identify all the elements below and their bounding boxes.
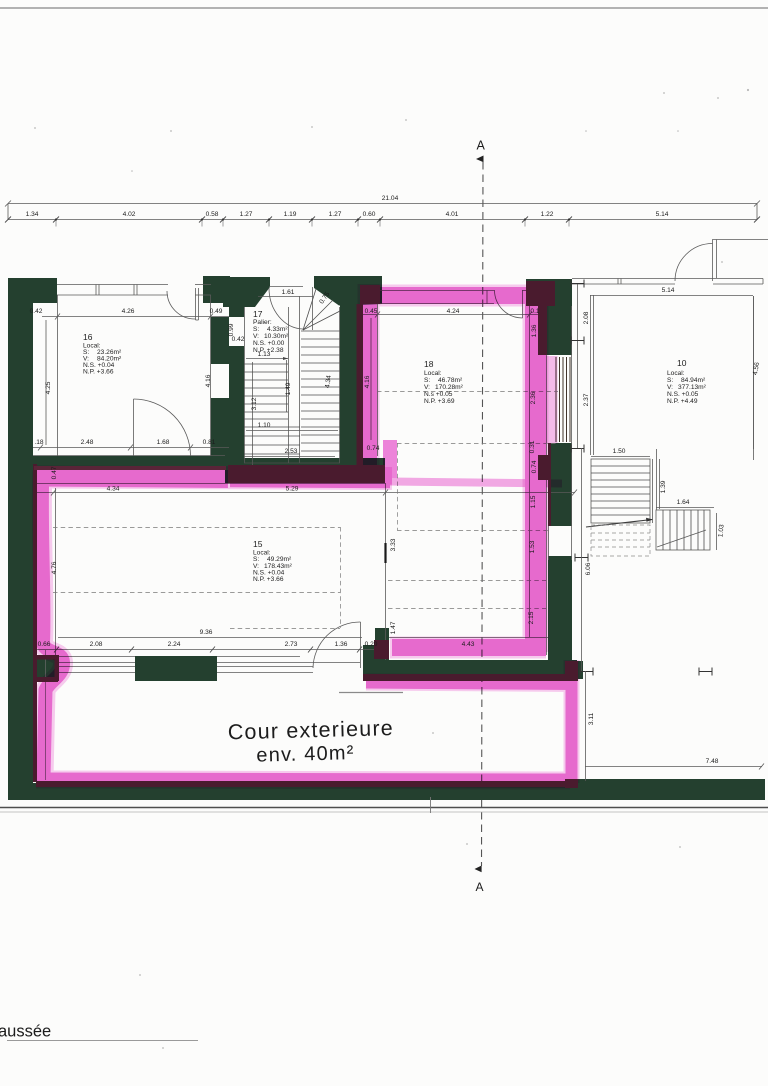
svg-text:0.47: 0.47	[51, 466, 58, 479]
svg-text:0.1: 0.1	[530, 308, 539, 315]
svg-text:3.12: 3.12	[251, 397, 258, 410]
svg-text:377.13m²: 377.13m²	[678, 384, 707, 391]
svg-text:2.36: 2.36	[530, 391, 537, 404]
svg-text:N.S. +0.05: N.S. +0.05	[667, 391, 699, 398]
svg-text:2.15: 2.15	[528, 611, 535, 624]
svg-text:3.33: 3.33	[390, 538, 397, 551]
svg-text:N.P. +3.66: N.P. +3.66	[253, 576, 284, 583]
svg-text:9.36: 9.36	[200, 629, 213, 636]
svg-text:4.33m²: 4.33m²	[267, 326, 288, 333]
svg-text:N.P. +3.69: N.P. +3.69	[424, 398, 455, 405]
svg-text:1.50: 1.50	[613, 448, 626, 455]
svg-text:1.27: 1.27	[329, 211, 342, 218]
svg-text:4.34: 4.34	[107, 486, 120, 493]
svg-text:N.s +0.05: N.s +0.05	[424, 391, 453, 398]
svg-text:1.36: 1.36	[335, 641, 348, 648]
svg-text:2.37: 2.37	[583, 393, 590, 406]
svg-text:A: A	[477, 139, 486, 153]
svg-text:46.78m²: 46.78m²	[438, 377, 463, 384]
svg-text:1.47: 1.47	[390, 621, 397, 634]
svg-text:S:: S:	[253, 556, 259, 563]
svg-text:3.11: 3.11	[588, 712, 595, 725]
svg-text:16: 16	[83, 332, 93, 342]
svg-text:6.06: 6.06	[585, 562, 592, 575]
svg-text:Local:: Local:	[667, 370, 685, 377]
svg-text:1.36: 1.36	[531, 324, 538, 337]
svg-text:S:: S:	[667, 377, 673, 384]
svg-text:1.13: 1.13	[258, 351, 271, 358]
svg-text:4.02: 4.02	[123, 211, 136, 218]
svg-text:4.16: 4.16	[205, 374, 212, 387]
svg-text:1.03: 1.03	[717, 524, 725, 538]
svg-text:Palier:: Palier:	[253, 319, 272, 326]
svg-text:1.61: 1.61	[282, 289, 295, 296]
svg-text:1.15: 1.15	[530, 495, 537, 508]
svg-text:Cour exterieure: Cour exterieure	[227, 716, 394, 744]
svg-text:0.42: 0.42	[30, 308, 43, 315]
svg-text:5.14: 5.14	[656, 211, 669, 218]
svg-text:0.99: 0.99	[228, 323, 235, 336]
svg-text:N.P. +3.66: N.P. +3.66	[83, 369, 114, 376]
svg-text:170.28m²: 170.28m²	[435, 384, 464, 391]
svg-text:1.68: 1.68	[157, 439, 170, 446]
svg-text:0.66: 0.66	[38, 641, 51, 648]
svg-text:4.16: 4.16	[364, 375, 371, 388]
svg-text:18: 18	[424, 359, 434, 369]
svg-text:5.29: 5.29	[286, 486, 299, 493]
svg-text:1.27: 1.27	[240, 211, 253, 218]
svg-text:4.26: 4.26	[122, 308, 135, 315]
svg-text:Local:: Local:	[424, 370, 442, 377]
svg-text:1.19: 1.19	[284, 211, 297, 218]
svg-text:49.29m²: 49.29m²	[267, 556, 292, 563]
svg-text:2.53: 2.53	[285, 448, 298, 455]
svg-text:S:: S:	[424, 377, 430, 384]
svg-text:2.08: 2.08	[583, 311, 590, 324]
svg-text:4.43: 4.43	[462, 641, 475, 648]
svg-text:V:: V:	[667, 384, 673, 391]
svg-text:0.31: 0.31	[529, 440, 536, 453]
svg-text:S:: S:	[253, 326, 259, 333]
svg-text:0.60: 0.60	[363, 211, 376, 218]
svg-text:0.42: 0.42	[232, 336, 245, 343]
svg-text:A: A	[476, 880, 484, 894]
svg-text:N.S. +0.00: N.S. +0.00	[253, 340, 285, 347]
svg-text:1.22: 1.22	[541, 211, 554, 218]
svg-text:V:: V:	[424, 384, 430, 391]
svg-text:1.39: 1.39	[660, 480, 667, 493]
svg-text:0.58: 0.58	[206, 211, 219, 218]
svg-text:0.74: 0.74	[531, 460, 538, 473]
svg-text:2.08: 2.08	[90, 641, 103, 648]
svg-text:0.81: 0.81	[203, 439, 216, 446]
svg-text:7.48: 7.48	[706, 758, 719, 765]
svg-text:0.74: 0.74	[367, 445, 380, 452]
svg-text:0.20: 0.20	[365, 641, 378, 648]
svg-text:10: 10	[677, 358, 687, 368]
svg-text:2.48: 2.48	[81, 439, 94, 446]
svg-text:1.10: 1.10	[258, 422, 271, 429]
svg-text:0.49: 0.49	[210, 308, 223, 315]
svg-text:4.76: 4.76	[51, 561, 58, 574]
svg-text:2.73: 2.73	[285, 641, 298, 648]
svg-text:env. 40m²: env. 40m²	[256, 742, 355, 767]
svg-text:4.01: 4.01	[446, 211, 459, 218]
svg-text:0.45: 0.45	[365, 308, 378, 315]
svg-text:1.34: 1.34	[26, 211, 39, 218]
svg-text:17: 17	[253, 309, 263, 319]
svg-text:.18: .18	[34, 439, 43, 446]
svg-text:1.64: 1.64	[677, 499, 690, 506]
svg-text:5.14: 5.14	[662, 287, 675, 294]
svg-text:2.24: 2.24	[168, 641, 181, 648]
svg-text:10.30m²: 10.30m²	[264, 333, 289, 340]
svg-text:V:: V:	[253, 333, 259, 340]
svg-text:21.04: 21.04	[382, 195, 399, 202]
svg-text:aussée: aussée	[0, 1023, 51, 1041]
svg-text:4.25: 4.25	[45, 381, 52, 394]
svg-text:1.53: 1.53	[529, 540, 536, 553]
svg-text:4.24: 4.24	[447, 308, 460, 315]
svg-text:15: 15	[253, 539, 263, 549]
svg-text:N.P. +4.49: N.P. +4.49	[667, 398, 698, 405]
svg-text:1.49: 1.49	[285, 382, 292, 395]
svg-text:84.94m²: 84.94m²	[681, 377, 706, 384]
